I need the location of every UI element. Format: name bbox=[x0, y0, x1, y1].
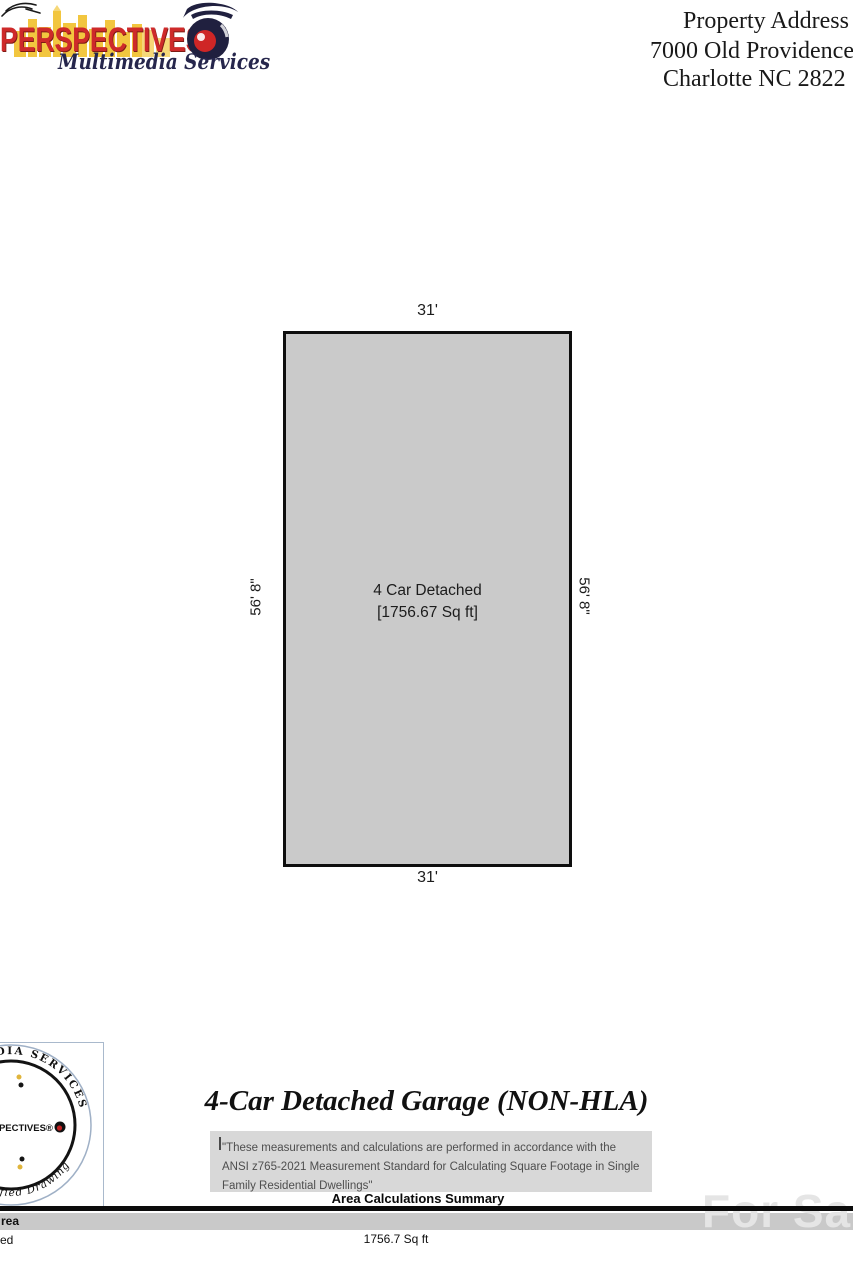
plan-dimension-left: 56' 8" bbox=[248, 578, 265, 615]
table-header-cell: rea bbox=[1, 1214, 19, 1228]
property-address-street: 7000 Old Providence bbox=[650, 38, 853, 65]
ansi-disclaimer-box: "These measurements and calculations are… bbox=[210, 1131, 652, 1192]
logo: PERSPECTIVES Multimedia Services bbox=[0, 0, 260, 85]
summary-divider-line bbox=[0, 1206, 853, 1211]
stamp-arc-bottom-text: 2021 Certified Drawing bbox=[0, 1151, 72, 1199]
room-name-label: 4 Car Detached bbox=[283, 582, 572, 600]
logo-tagline: Multimedia Services bbox=[58, 49, 270, 74]
certification-stamp: MULTIMEDIA SERVICES 2021 Certified Drawi… bbox=[0, 1042, 104, 1208]
ansi-disclaimer-text: "These measurements and calculations are… bbox=[210, 1131, 652, 1196]
plan-dimension-top: 31' bbox=[283, 302, 572, 320]
property-address-city: Charlotte NC 2822 bbox=[663, 66, 846, 93]
plan-dimension-right: 56' 8" bbox=[576, 577, 593, 614]
floor-plan-report-page: PERSPECTIVES Multimedia Services Propert… bbox=[0, 0, 853, 1280]
svg-text:2021 Certified Drawing: 2021 Certified Drawing bbox=[0, 1151, 72, 1199]
text-cursor bbox=[219, 1137, 221, 1150]
stamp-center-brand: PERSPECTIVES® bbox=[0, 1123, 53, 1134]
plan-dimension-bottom: 31' bbox=[283, 869, 572, 887]
for-sale-watermark: For Sale bbox=[702, 1184, 853, 1238]
table-row-label: ed bbox=[0, 1233, 13, 1247]
bird-sketch-icon bbox=[0, 0, 46, 22]
room-area-label: [1756.67 Sq ft] bbox=[283, 604, 572, 622]
table-row-value: 1756.7 Sq ft bbox=[330, 1232, 462, 1246]
property-address-label: Property Address bbox=[683, 8, 849, 35]
report-title: 4-Car Detached Garage (NON-HLA) bbox=[0, 1085, 853, 1118]
